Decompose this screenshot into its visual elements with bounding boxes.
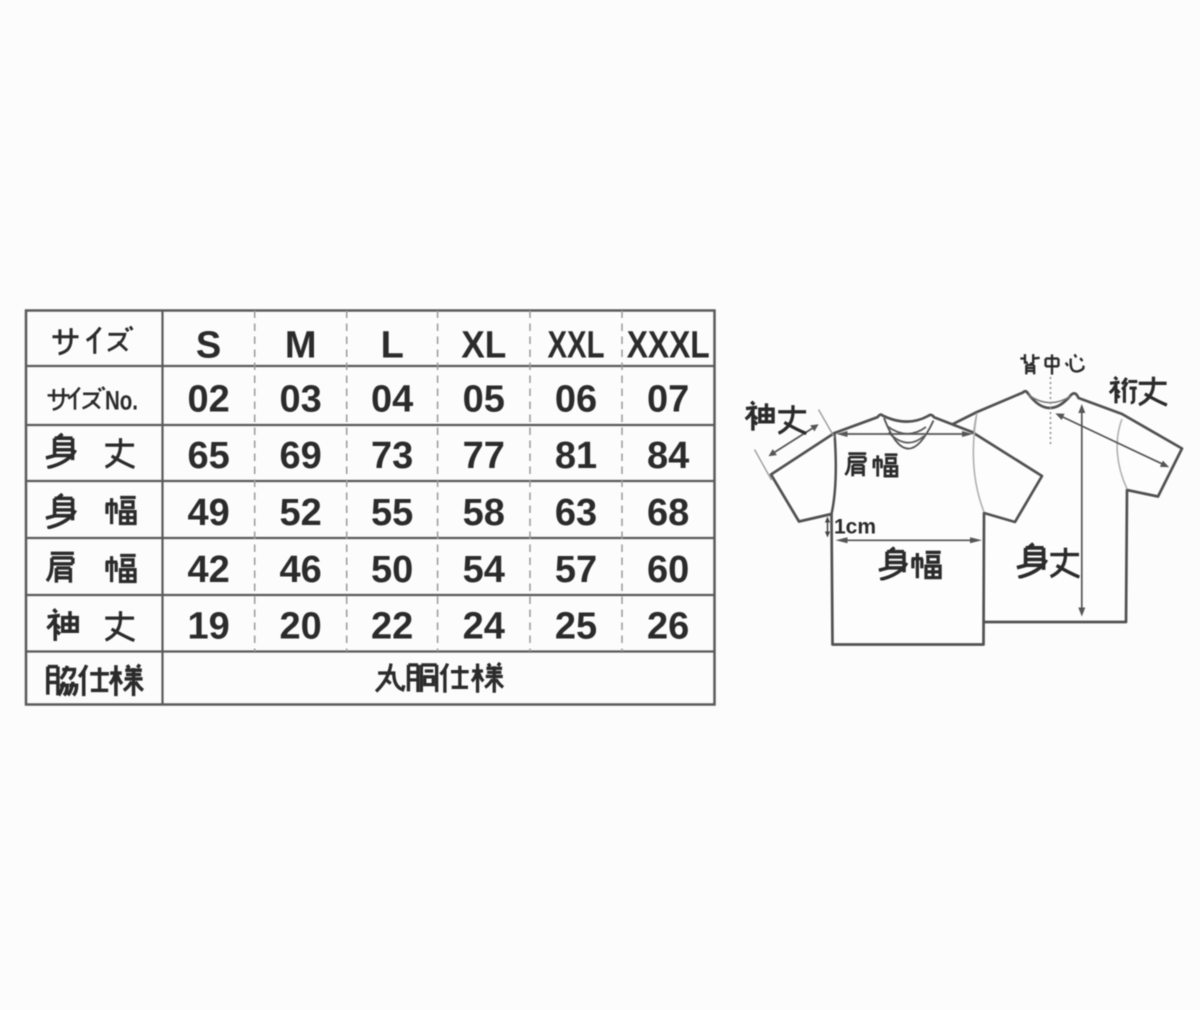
svg-text:1cm: 1cm bbox=[834, 516, 876, 539]
svg-text:19: 19 bbox=[187, 606, 229, 648]
svg-text:52: 52 bbox=[280, 492, 322, 534]
svg-text:05: 05 bbox=[463, 379, 505, 421]
svg-text:73: 73 bbox=[371, 435, 413, 477]
svg-text:54: 54 bbox=[463, 549, 505, 591]
svg-text:22: 22 bbox=[371, 606, 413, 648]
svg-text:XXL: XXL bbox=[548, 325, 605, 367]
svg-text:84: 84 bbox=[647, 435, 689, 477]
svg-text:25: 25 bbox=[555, 606, 597, 648]
svg-text:55: 55 bbox=[371, 492, 413, 534]
svg-text:06: 06 bbox=[555, 379, 597, 421]
svg-text:XXXL: XXXL bbox=[627, 325, 710, 367]
svg-text:68: 68 bbox=[647, 492, 689, 534]
svg-text:77: 77 bbox=[463, 435, 505, 477]
svg-text:63: 63 bbox=[555, 492, 597, 534]
svg-text:58: 58 bbox=[463, 492, 505, 534]
svg-text:20: 20 bbox=[280, 606, 322, 648]
svg-text:49: 49 bbox=[187, 492, 229, 534]
svg-text:02: 02 bbox=[187, 379, 229, 421]
svg-text:26: 26 bbox=[647, 606, 689, 648]
svg-text:57: 57 bbox=[555, 549, 597, 591]
svg-text:M: M bbox=[285, 325, 317, 367]
svg-text:60: 60 bbox=[647, 549, 689, 591]
svg-text:No.: No. bbox=[105, 386, 138, 416]
svg-text:46: 46 bbox=[280, 549, 322, 591]
svg-text:65: 65 bbox=[187, 435, 229, 477]
svg-text:24: 24 bbox=[463, 606, 505, 648]
svg-text:S: S bbox=[196, 325, 221, 367]
svg-text:42: 42 bbox=[187, 549, 229, 591]
svg-text:50: 50 bbox=[371, 549, 413, 591]
svg-text:03: 03 bbox=[280, 379, 322, 421]
svg-text:XL: XL bbox=[461, 325, 506, 367]
svg-text:L: L bbox=[381, 325, 404, 367]
svg-text:69: 69 bbox=[280, 435, 322, 477]
svg-text:81: 81 bbox=[555, 435, 597, 477]
svg-text:07: 07 bbox=[647, 379, 689, 421]
svg-text:04: 04 bbox=[371, 379, 413, 421]
